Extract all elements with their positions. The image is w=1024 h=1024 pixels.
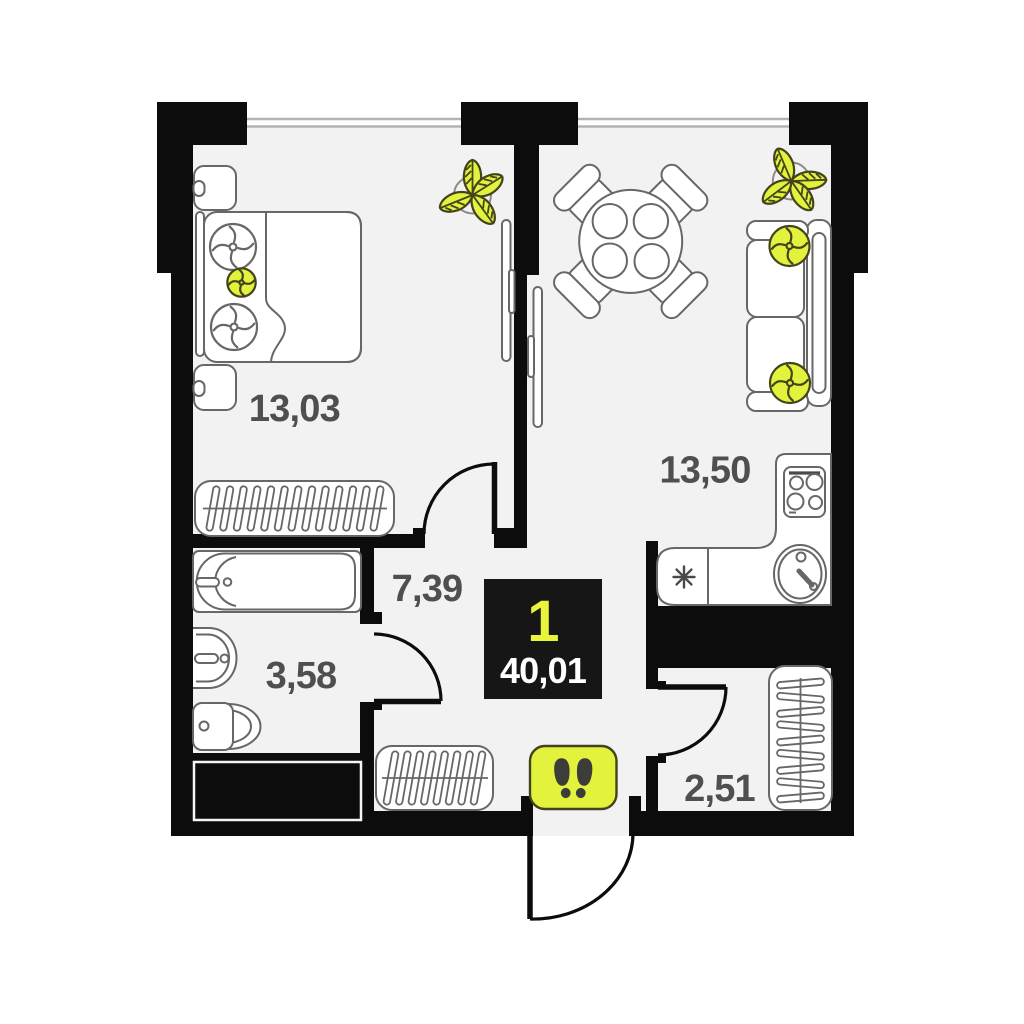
- svg-text:7,39: 7,39: [392, 568, 463, 610]
- svg-text:1: 1: [527, 589, 558, 654]
- svg-text:13,50: 13,50: [659, 450, 750, 492]
- svg-text:13,03: 13,03: [249, 388, 340, 430]
- svg-text:40,01: 40,01: [500, 650, 587, 691]
- svg-text:2,51: 2,51: [684, 768, 755, 810]
- svg-text:3,58: 3,58: [266, 655, 337, 697]
